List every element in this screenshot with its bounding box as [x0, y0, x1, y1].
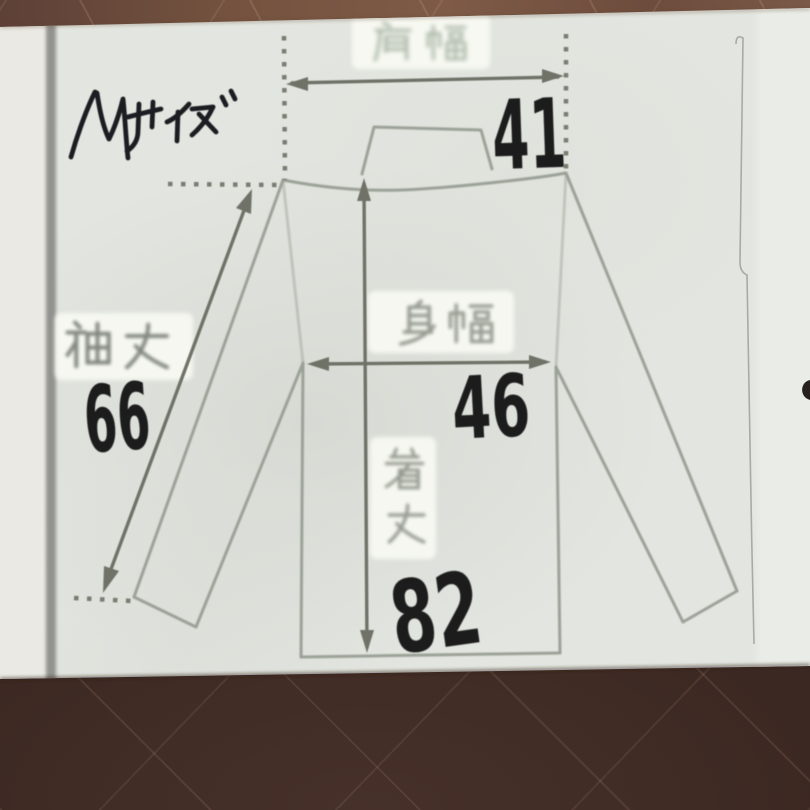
kana-i [177, 112, 178, 141]
cuff-guide [74, 598, 133, 601]
letter-M [71, 92, 128, 158]
ink-notch [802, 380, 810, 400]
right-cuff [683, 591, 737, 622]
left-body-seam [283, 180, 303, 363]
arrowhead-down [103, 566, 119, 593]
kana-sa [128, 109, 161, 117]
body-length-arrow [364, 184, 367, 647]
shoulder-width-value: 41 [490, 78, 568, 193]
left-sleeve-outer-edge [134, 180, 283, 597]
body-length-value: 82 [383, 549, 488, 677]
arrowhead-up [236, 189, 252, 214]
sleeve-length-value: 66 [80, 363, 153, 474]
body-length-label-art [386, 449, 423, 542]
collar-outline [362, 127, 492, 174]
arrowhead-right [529, 355, 551, 369]
dakuten [231, 91, 235, 99]
body-width-label-art [401, 301, 492, 343]
dakuten [222, 97, 226, 105]
left-sleeve-inner-edge [196, 363, 303, 627]
arrowhead-down [360, 630, 374, 653]
sleeve-length-label-art [68, 323, 168, 368]
photo-of-garment-size-diagram: Mサイズ 肩幅 身幅 袖丈 着丈 [0, 0, 810, 810]
paper-crease-line [736, 37, 754, 644]
handwritten-size-label [71, 91, 235, 158]
right-sleeve-inner-edge [556, 367, 683, 622]
arrowhead-left [286, 77, 308, 91]
body-width-value: 46 [449, 356, 532, 460]
garment-measurement-diagram: 41 66 46 82 [0, 0, 810, 810]
right-body-seam [556, 173, 566, 367]
shoulder-width-label-art [375, 23, 465, 60]
arrowhead-left [307, 357, 329, 371]
right-sleeve-outer-edge [566, 173, 737, 591]
body-right-edge [556, 367, 560, 653]
left-shoulder-guide-vertical [284, 36, 285, 180]
kana-sa [152, 102, 153, 127]
left-cuff [134, 597, 196, 627]
left-shoulder-guide-horizontal [168, 184, 280, 185]
body-left-edge [301, 363, 303, 657]
handwritten-values: 41 66 46 82 [80, 78, 568, 678]
